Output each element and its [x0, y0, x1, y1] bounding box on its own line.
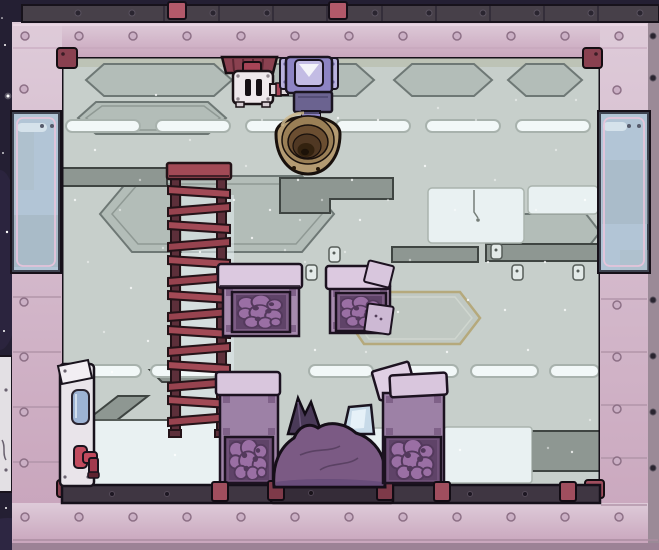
wall-top[interactable]	[12, 22, 648, 57]
storage-bin-lower-right[interactable]	[372, 361, 448, 483]
storage-bin-upper-right[interactable]	[326, 260, 394, 334]
tile-bracket-top-2	[329, 2, 347, 19]
bin-lid	[218, 264, 302, 288]
window-tile-right[interactable]	[599, 112, 649, 272]
game-viewport	[0, 0, 659, 550]
tile-bracket-top-1	[168, 2, 186, 19]
vent-slot-right	[256, 79, 262, 96]
vent-slot-left	[245, 79, 251, 96]
wall-bottom[interactable]	[12, 503, 659, 543]
water-cooler[interactable]	[58, 360, 99, 486]
wall-right[interactable]	[600, 22, 648, 543]
light-streaks-bottom	[85, 364, 600, 378]
pump-intake-horn[interactable]	[276, 113, 340, 174]
exterior-structure	[0, 356, 12, 492]
storage-bin-upper-left[interactable]	[218, 264, 302, 336]
window-tile-left[interactable]	[12, 112, 60, 272]
cooler-tank-window	[72, 390, 89, 424]
top-exterior-trim	[22, 2, 659, 22]
gas-vent[interactable]	[233, 71, 273, 107]
wall-bottom-outer-trim	[12, 543, 659, 550]
storage-bin-lower-left[interactable]	[216, 372, 280, 483]
pump-lower-box	[294, 92, 332, 112]
